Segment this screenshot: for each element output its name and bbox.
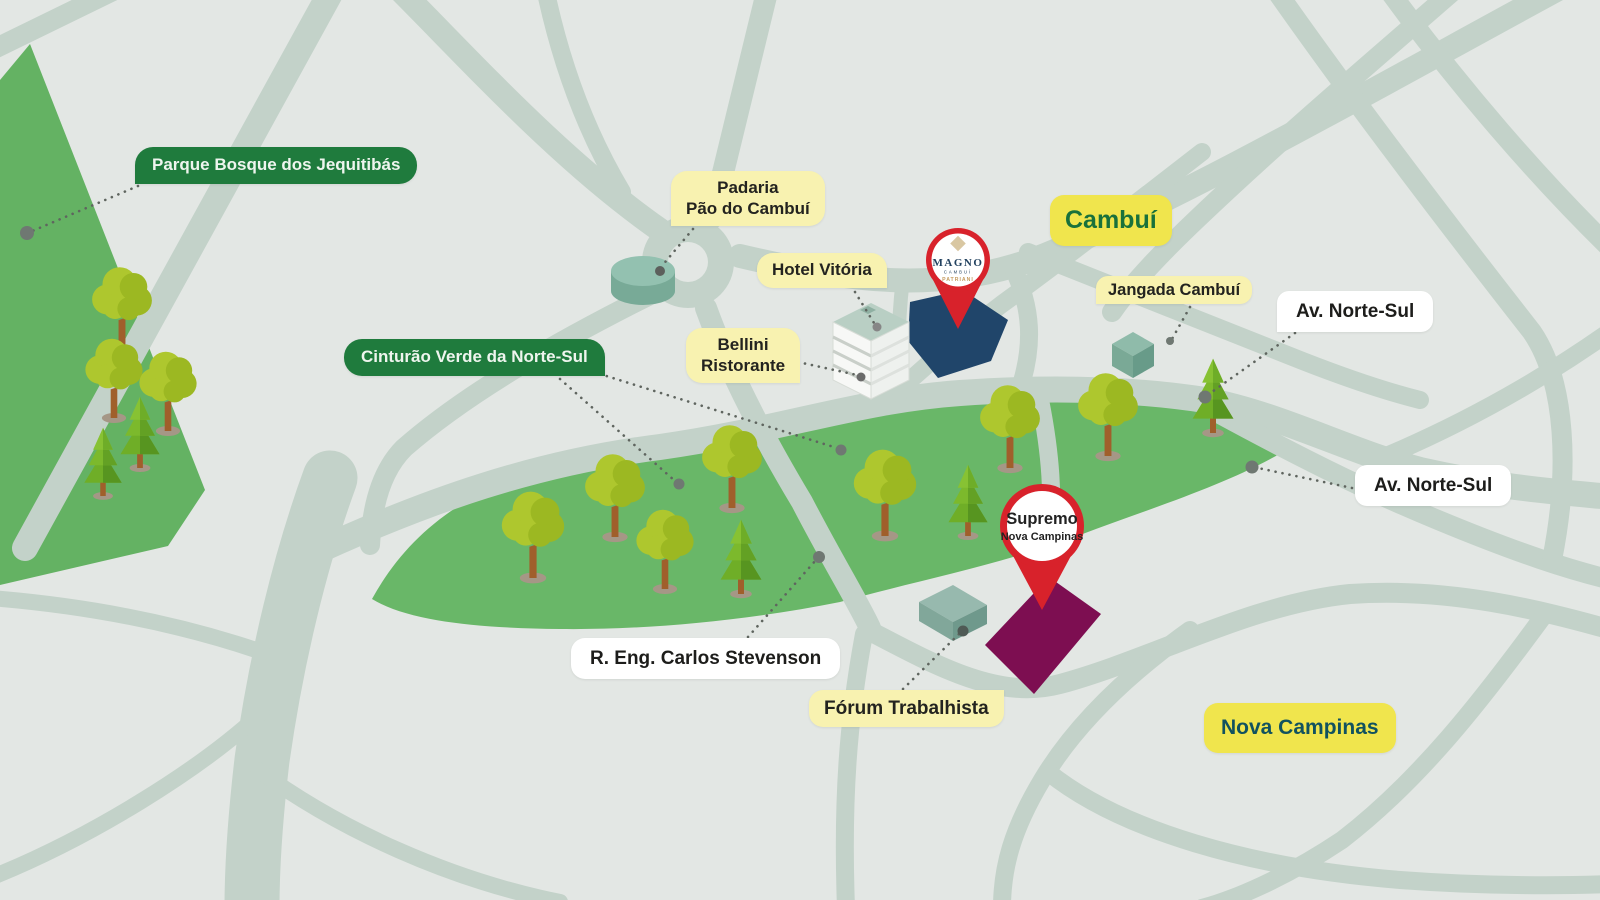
magno-location: CAMBUÍ: [944, 270, 972, 275]
label-text: Av. Norte-Sul: [1296, 301, 1414, 322]
label-forum-trabalhista[interactable]: Fórum Trabalhista: [809, 690, 1004, 727]
label-bellini-ristorante[interactable]: Bellini Ristorante: [686, 328, 800, 383]
label-nova-campinas[interactable]: Nova Campinas: [1204, 703, 1396, 753]
hotel-building: [833, 303, 909, 399]
supremo-subtitle: Nova Campinas: [1001, 531, 1084, 543]
label-text: Jangada Cambuí: [1108, 281, 1240, 299]
supremo-title: Supremo: [1006, 510, 1078, 528]
label-text: Cinturão Verde da Norte-Sul: [361, 347, 588, 366]
label-av-norte-sul-east[interactable]: Av. Norte-Sul: [1355, 465, 1511, 506]
padaria-building: [611, 256, 675, 305]
label-text-line2: Ristorante: [701, 356, 785, 377]
label-text-line1: Bellini: [701, 335, 785, 356]
label-text-line2: Pão do Cambuí: [686, 199, 810, 220]
label-av-norte-sul-north[interactable]: Av. Norte-Sul: [1277, 291, 1433, 332]
map-base: MAGNO CAMBUÍ PATRIANI Supremo Nova Campi…: [0, 0, 1600, 900]
label-carlos-stevenson[interactable]: R. Eng. Carlos Stevenson: [571, 638, 840, 679]
label-text: Av. Norte-Sul: [1374, 475, 1492, 496]
label-text: Cambuí: [1065, 206, 1157, 234]
label-text: R. Eng. Carlos Stevenson: [590, 648, 821, 669]
label-text: Fórum Trabalhista: [824, 698, 989, 719]
label-text: Nova Campinas: [1221, 716, 1379, 739]
label-padaria[interactable]: Padaria Pão do Cambuí: [671, 171, 825, 226]
magno-brand: MAGNO: [933, 257, 984, 269]
label-text: Hotel Vitória: [772, 260, 872, 279]
label-text: Parque Bosque dos Jequitibás: [152, 155, 400, 174]
label-hotel-vitoria[interactable]: Hotel Vitória: [757, 253, 887, 288]
label-text-line1: Padaria: [686, 178, 810, 199]
location-map: MAGNO CAMBUÍ PATRIANI Supremo Nova Campi…: [0, 0, 1600, 900]
label-jangada-cambui[interactable]: Jangada Cambuí: [1096, 276, 1252, 304]
label-parque-bosque[interactable]: Parque Bosque dos Jequitibás: [135, 147, 417, 184]
label-cambui[interactable]: Cambuí: [1050, 195, 1172, 246]
magno-developer: PATRIANI: [942, 277, 974, 283]
label-cinturao-verde[interactable]: Cinturão Verde da Norte-Sul: [344, 339, 605, 376]
